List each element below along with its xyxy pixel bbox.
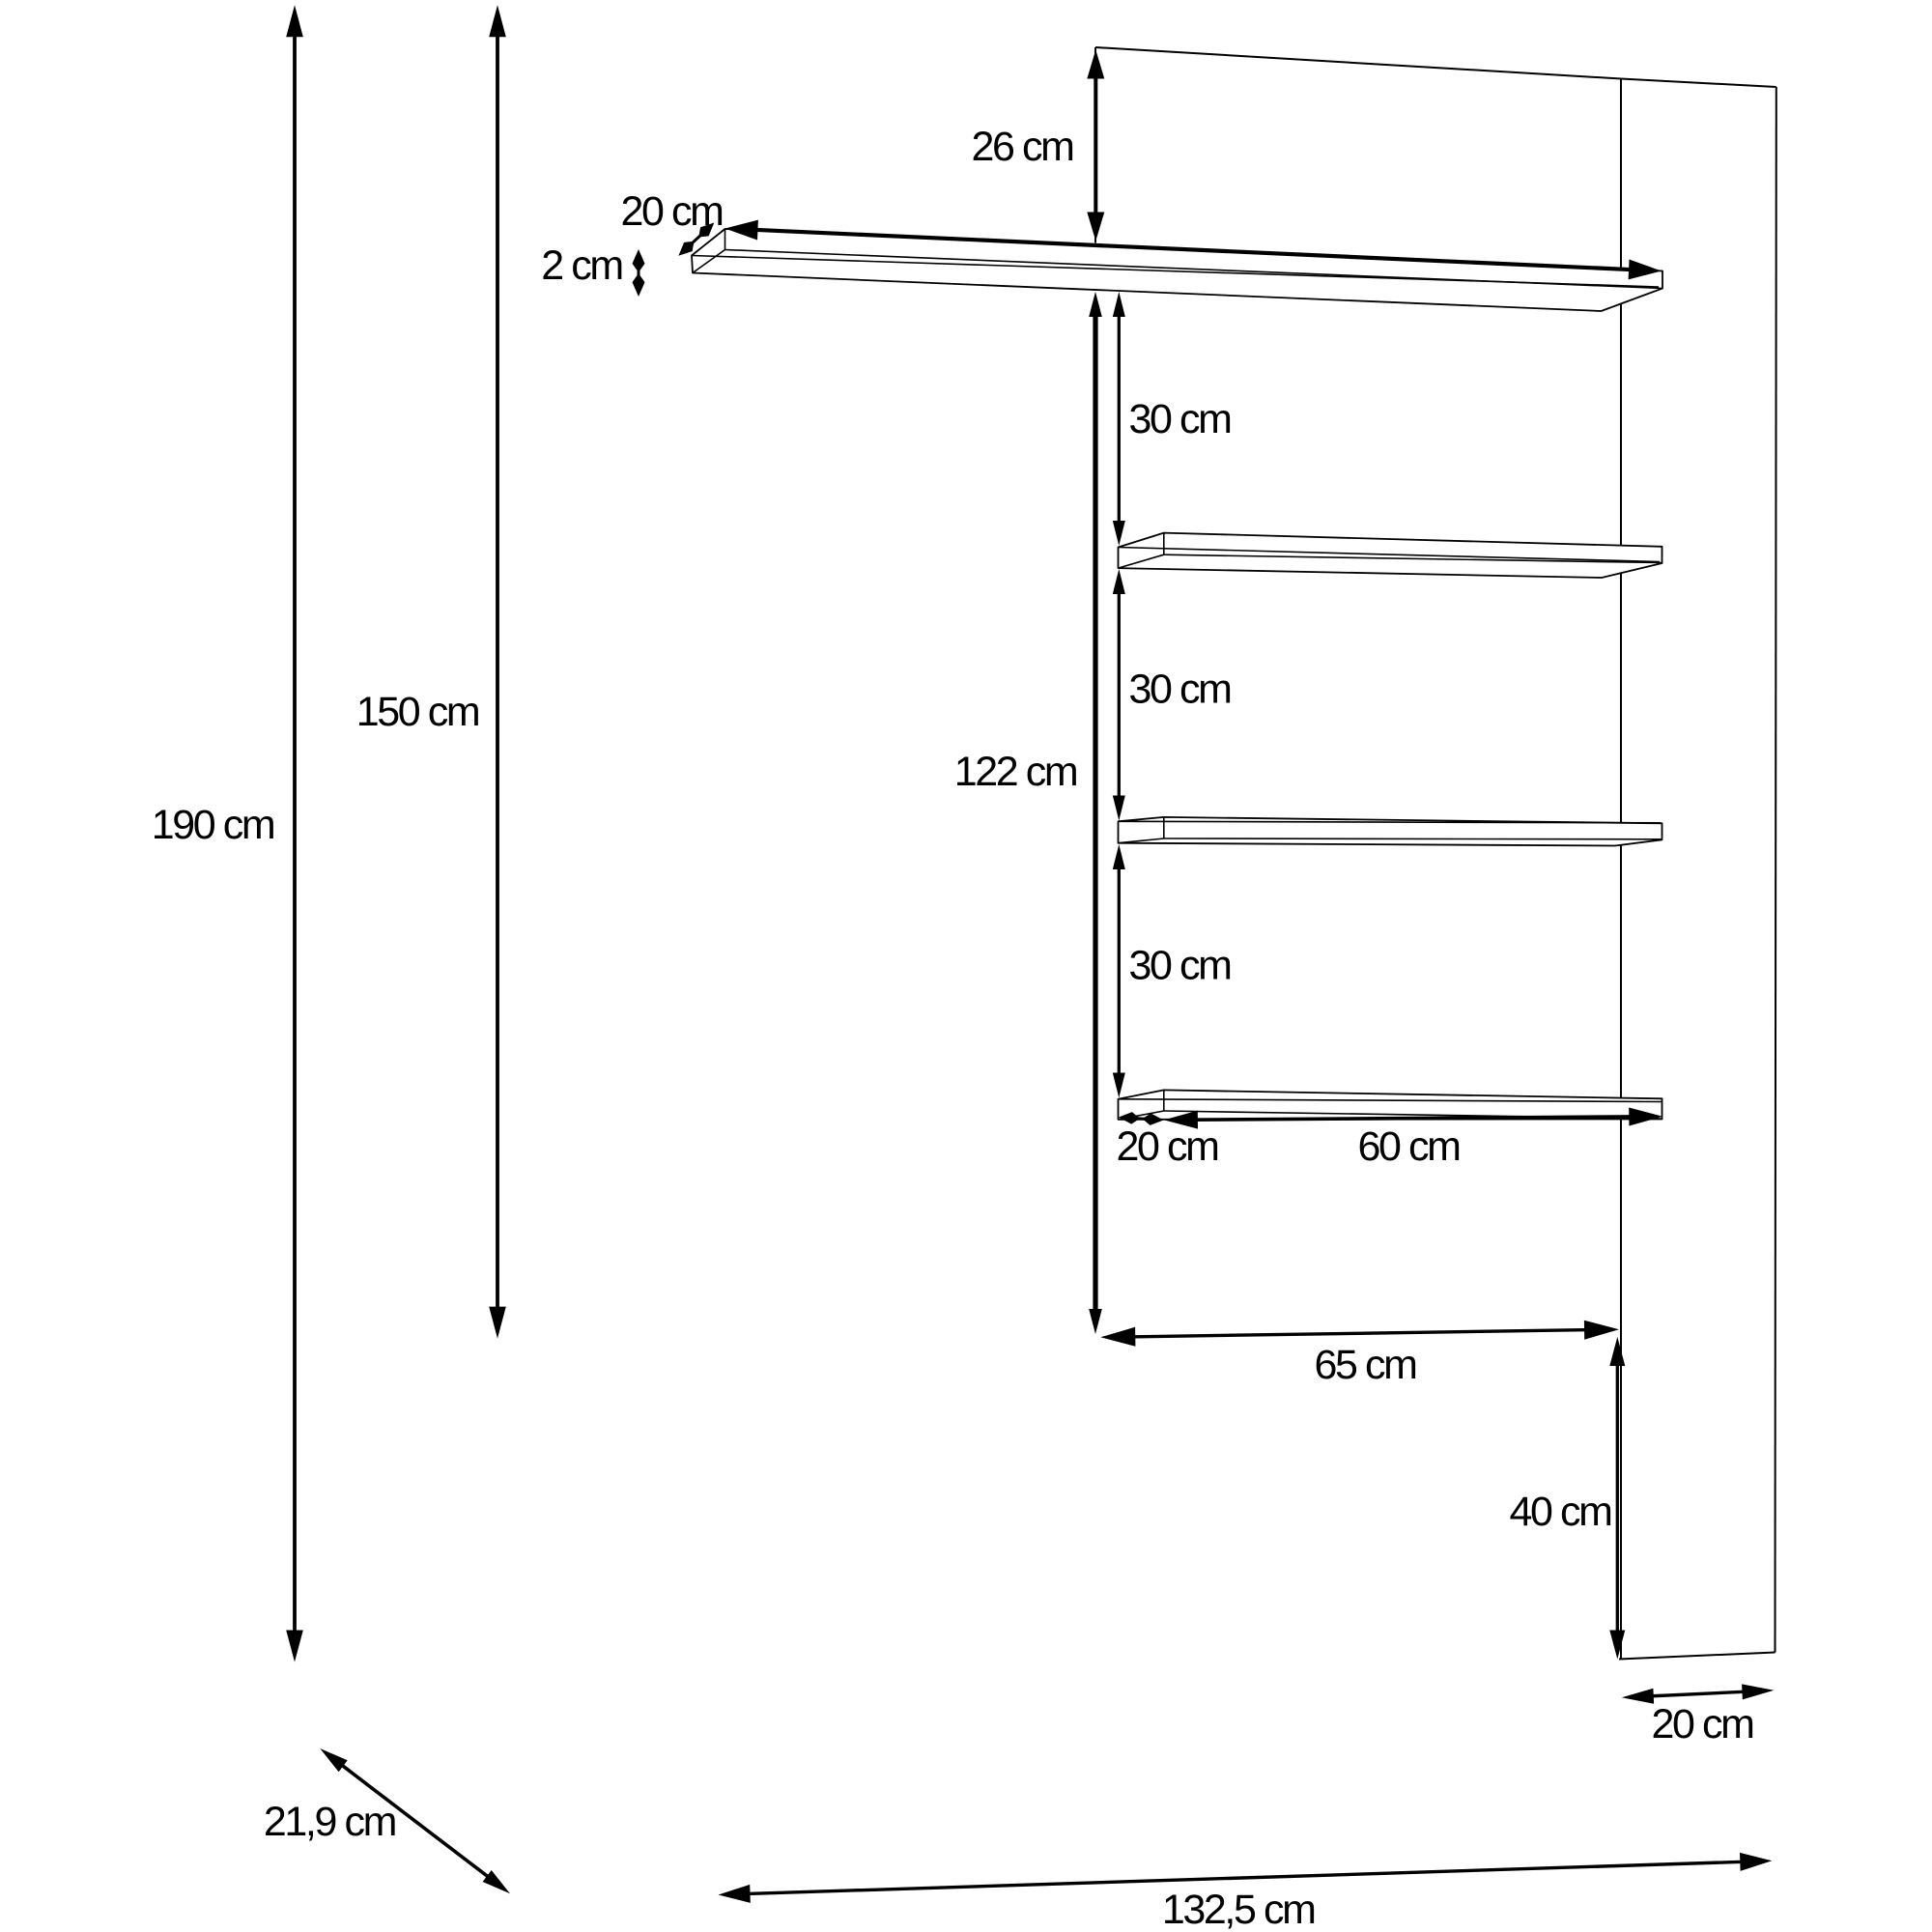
svg-text:150 cm: 150 cm: [356, 689, 479, 735]
svg-text:132,5 cm: 132,5 cm: [1162, 1887, 1315, 1932]
svg-text:190 cm: 190 cm: [152, 802, 274, 848]
svg-text:2 cm: 2 cm: [541, 242, 622, 289]
svg-text:20 cm: 20 cm: [620, 188, 722, 235]
svg-text:26 cm: 26 cm: [971, 124, 1072, 170]
svg-text:30 cm: 30 cm: [1128, 396, 1230, 442]
svg-text:60 cm: 60 cm: [1357, 1123, 1459, 1170]
svg-text:30 cm: 30 cm: [1128, 667, 1230, 713]
svg-text:20 cm: 20 cm: [1116, 1123, 1217, 1170]
svg-text:122 cm: 122 cm: [954, 749, 1077, 795]
svg-text:21,9 cm: 21,9 cm: [264, 1799, 395, 1845]
svg-text:20 cm: 20 cm: [1651, 1701, 1752, 1747]
svg-text:40 cm: 40 cm: [1509, 1489, 1610, 1535]
svg-text:30 cm: 30 cm: [1128, 943, 1230, 989]
svg-text:65 cm: 65 cm: [1314, 1342, 1415, 1388]
